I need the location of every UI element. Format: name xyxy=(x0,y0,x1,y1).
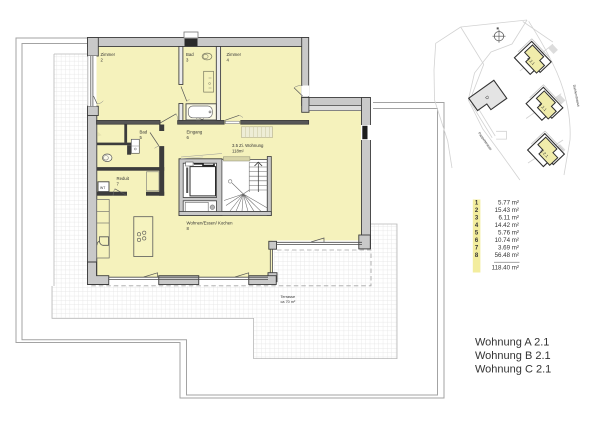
svg-text:Zimmer: Zimmer xyxy=(101,52,116,57)
svg-text:118m²: 118m² xyxy=(232,149,244,154)
svg-text:10.74 m²: 10.74 m² xyxy=(495,237,519,244)
svg-text:6.11 m²: 6.11 m² xyxy=(498,214,519,221)
svg-text:Bad: Bad xyxy=(186,52,194,57)
svg-text:WT: WT xyxy=(100,186,105,190)
svg-text:15.43 m²: 15.43 m² xyxy=(495,207,519,214)
svg-text:Wohnung B 2.1: Wohnung B 2.1 xyxy=(475,350,551,362)
svg-text:Eingang: Eingang xyxy=(187,130,203,135)
svg-text:Dahlienstrasse: Dahlienstrasse xyxy=(572,84,581,107)
svg-text:Wohnung A 2.1: Wohnung A 2.1 xyxy=(475,337,549,349)
svg-text:ca 70 m²: ca 70 m² xyxy=(281,300,297,304)
svg-text:Bad: Bad xyxy=(140,130,148,135)
svg-text:Reduit: Reduit xyxy=(117,176,130,181)
svg-text:Zimmer: Zimmer xyxy=(227,52,242,57)
svg-text:Wohnung C 2.1: Wohnung C 2.1 xyxy=(475,364,551,376)
svg-text:118.40 m²: 118.40 m² xyxy=(492,264,519,271)
svg-text:14.42 m²: 14.42 m² xyxy=(495,222,519,229)
svg-text:3.5 Zi. Wohnung: 3.5 Zi. Wohnung xyxy=(232,143,264,148)
svg-text:Terrasse: Terrasse xyxy=(281,295,296,299)
svg-text:56.48 m²: 56.48 m² xyxy=(495,252,519,259)
svg-text:5.77 m²: 5.77 m² xyxy=(498,200,519,207)
svg-text:5.76 m²: 5.76 m² xyxy=(498,229,519,236)
svg-text:3.69 m²: 3.69 m² xyxy=(498,244,519,251)
svg-text:Wohnen/Essen/ Kochen: Wohnen/Essen/ Kochen xyxy=(187,221,234,226)
